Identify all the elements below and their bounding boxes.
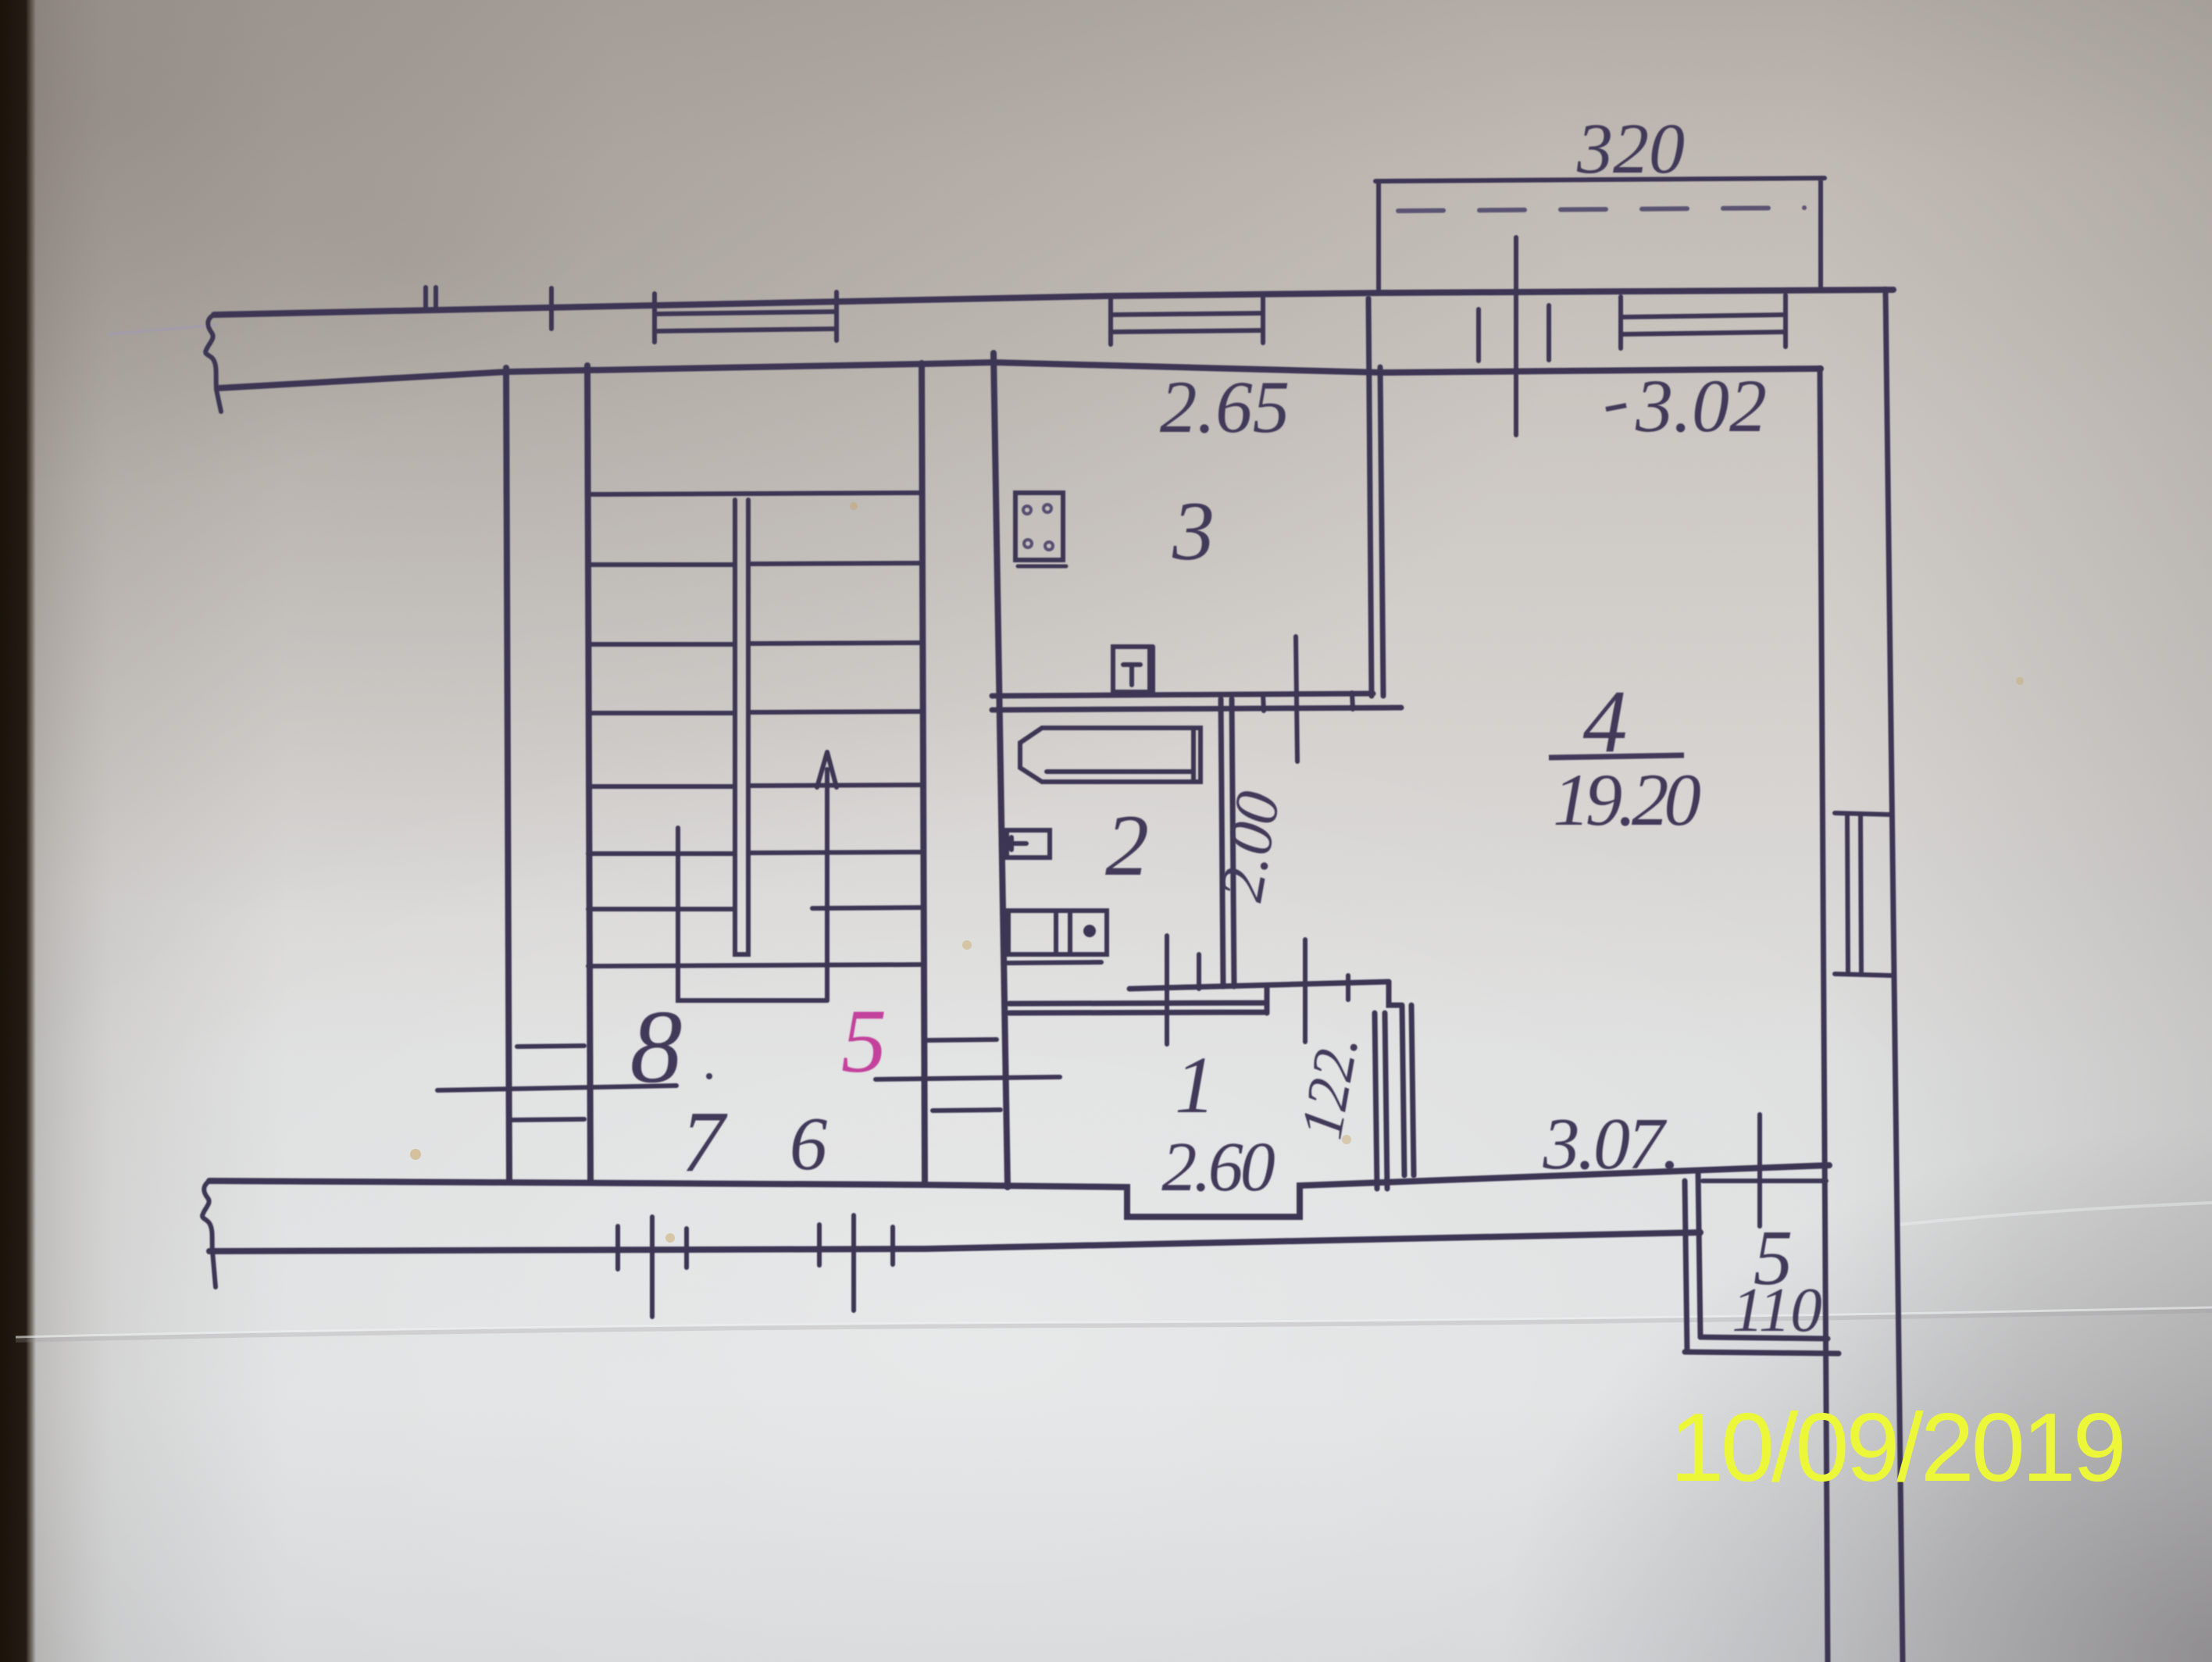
svg-text:10/09/2019: 10/09/2019	[1670, 1394, 2124, 1502]
